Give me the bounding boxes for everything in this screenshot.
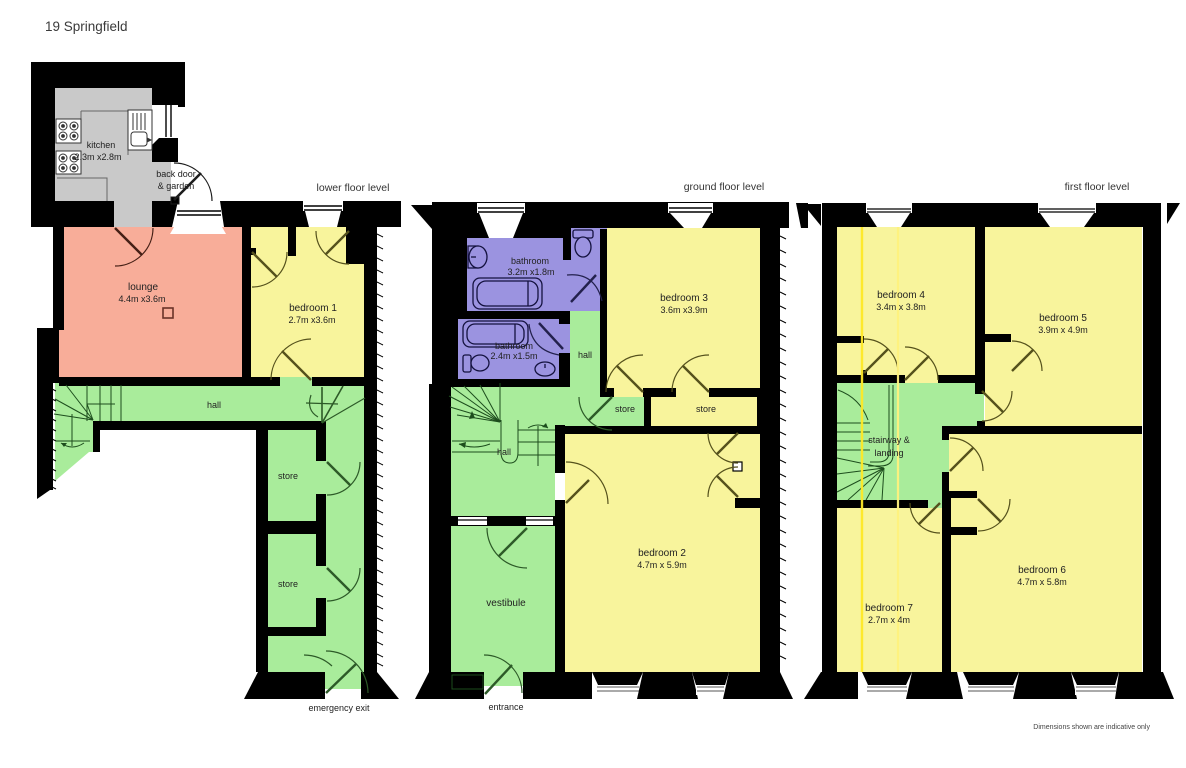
svg-text:back door: back door [156,169,196,179]
svg-text:store: store [278,579,298,589]
svg-text:& garden: & garden [158,181,195,191]
svg-text:3.9m x 4.9m: 3.9m x 4.9m [1038,325,1088,335]
svg-text:2.3m x2.8m: 2.3m x2.8m [74,152,121,162]
svg-text:2.7m x3.6m: 2.7m x3.6m [288,315,335,325]
svg-text:lounge: lounge [128,282,158,293]
svg-text:kitchen: kitchen [87,140,116,150]
svg-text:vestibule: vestibule [486,598,526,609]
svg-text:stairway &: stairway & [868,435,910,445]
svg-text:first floor level: first floor level [1065,181,1130,193]
svg-text:2.4m x1.5m: 2.4m x1.5m [490,351,537,361]
svg-text:bedroom 4: bedroom 4 [877,290,925,301]
svg-text:bathroom: bathroom [511,256,549,266]
svg-text:landing: landing [874,448,903,458]
svg-text:store: store [278,471,298,481]
svg-text:store: store [615,404,635,414]
svg-text:entrance: entrance [488,702,523,712]
svg-text:hall: hall [578,350,592,360]
svg-text:bedroom 1: bedroom 1 [289,303,337,314]
svg-text:4.4m x3.6m: 4.4m x3.6m [118,294,165,304]
svg-text:3.2m x1.8m: 3.2m x1.8m [507,267,554,277]
svg-text:bedroom 2: bedroom 2 [638,548,686,559]
svg-text:store: store [696,404,716,414]
svg-text:lower floor level: lower floor level [317,182,390,194]
svg-text:bedroom 7: bedroom 7 [865,603,913,614]
svg-text:Dimensions shown are indicativ: Dimensions shown are indicative only [1033,724,1150,731]
svg-text:emergency exit: emergency exit [308,703,370,713]
svg-text:19 Springfield: 19 Springfield [45,19,128,34]
svg-text:3.6m x3.9m: 3.6m x3.9m [660,305,707,315]
svg-text:hall: hall [497,447,511,457]
svg-text:bathroom: bathroom [495,341,533,351]
svg-text:bedroom 5: bedroom 5 [1039,313,1087,324]
svg-text:ground floor level: ground floor level [684,181,765,193]
svg-text:bedroom 3: bedroom 3 [660,293,708,304]
svg-text:bedroom 6: bedroom 6 [1018,565,1066,576]
svg-text:2.7m x 4m: 2.7m x 4m [868,615,910,625]
svg-text:hall: hall [207,400,221,410]
svg-text:3.4m x 3.8m: 3.4m x 3.8m [876,302,926,312]
svg-text:4.7m x 5.9m: 4.7m x 5.9m [637,560,687,570]
svg-text:4.7m x 5.8m: 4.7m x 5.8m [1017,577,1067,587]
